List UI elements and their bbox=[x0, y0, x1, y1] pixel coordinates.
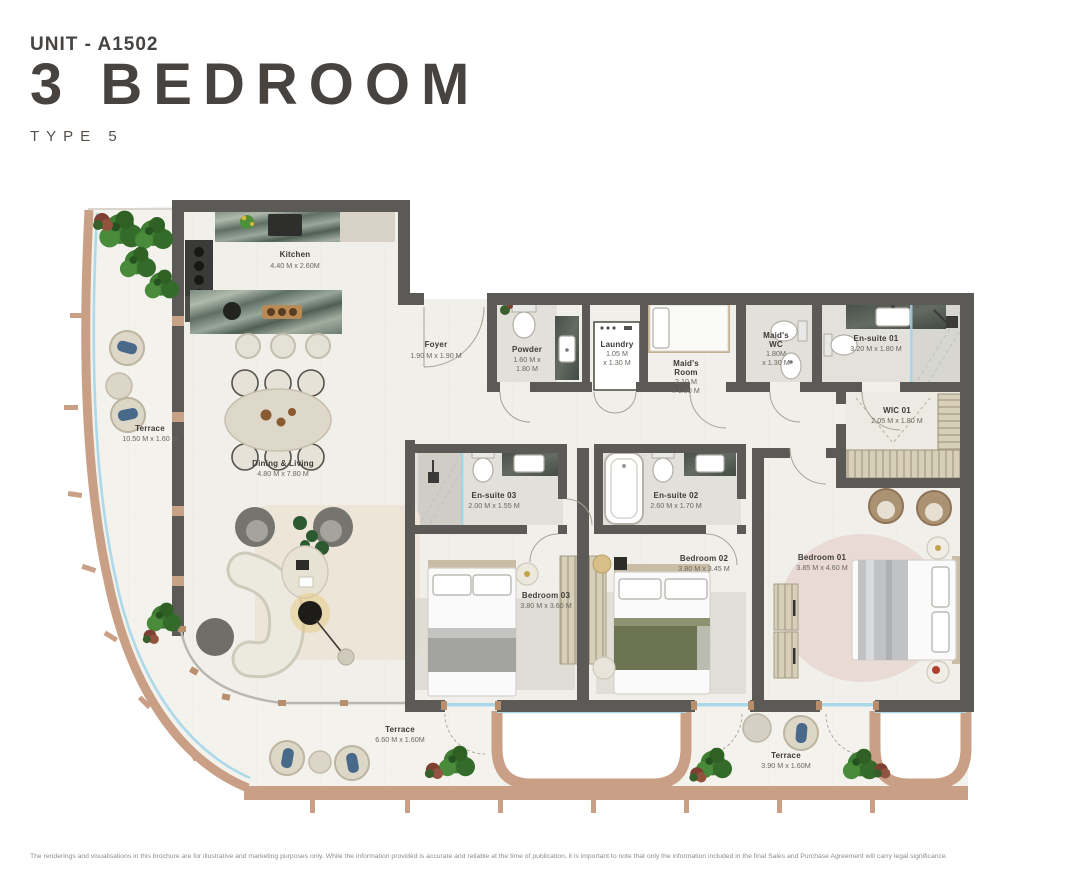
svg-text:2.60 M x 1.70 M: 2.60 M x 1.70 M bbox=[650, 501, 702, 510]
bedroom02-label: Bedroom 02 bbox=[680, 554, 729, 563]
wic01-label: WIC 01 bbox=[883, 406, 911, 415]
svg-text:3.90 M x 1.60M: 3.90 M x 1.60M bbox=[761, 761, 811, 770]
svg-text:2.05 M x 1.80 M: 2.05 M x 1.80 M bbox=[871, 416, 923, 425]
svg-text:1.80M: 1.80M bbox=[766, 349, 786, 358]
disclaimer-text: The renderings and visualisations in thi… bbox=[30, 853, 1080, 860]
svg-text:1.60 M x: 1.60 M x bbox=[513, 355, 541, 364]
dining-set bbox=[225, 370, 331, 470]
svg-text:10.50 M x 1.60 M: 10.50 M x 1.60 M bbox=[122, 434, 178, 443]
ensuite01-label: En-suite 01 bbox=[854, 334, 899, 343]
svg-text:6.60 M x 1.60M: 6.60 M x 1.60M bbox=[375, 735, 425, 744]
dining-living-label: Dining & Living bbox=[252, 459, 314, 468]
terrace-bottom-label: Terrace bbox=[385, 725, 415, 734]
svg-text:4.80 M x 7.80 M: 4.80 M x 7.80 M bbox=[257, 469, 309, 478]
foyer-dims: 1.90 M x 1.90 M bbox=[410, 351, 462, 360]
svg-text:2.00 M x 1.55 M: 2.00 M x 1.55 M bbox=[468, 501, 520, 510]
terrace-right-label: Terrace bbox=[771, 751, 801, 760]
terrace-left-label: Terrace bbox=[135, 424, 165, 433]
bar-stools bbox=[236, 334, 330, 358]
floor-plan: Kitchen 4.40 M x 2.60M Foyer 1.90 M x 1.… bbox=[0, 0, 1092, 891]
kitchen-label: Kitchen bbox=[280, 250, 311, 259]
svg-text:2.10 M: 2.10 M bbox=[675, 377, 697, 386]
svg-text:x 1.30 M: x 1.30 M bbox=[603, 358, 631, 367]
ensuite02-label: En-suite 02 bbox=[654, 491, 699, 500]
foyer-label: Foyer bbox=[425, 340, 448, 349]
maids-wc-label: Maid's bbox=[763, 331, 789, 340]
laundry-label: Laundry bbox=[601, 340, 634, 349]
svg-text:3.85 M x 4.60 M: 3.85 M x 4.60 M bbox=[796, 563, 848, 572]
svg-text:x 1.80 M: x 1.80 M bbox=[672, 386, 700, 395]
powder-label: Powder bbox=[512, 345, 542, 354]
maids-room-label: Maid's bbox=[673, 359, 699, 368]
svg-text:WC: WC bbox=[769, 340, 783, 349]
brochure-page: { "header": { "unit": "UNIT - A1502", "t… bbox=[0, 0, 1092, 891]
terrace-cutout-left bbox=[497, 710, 686, 784]
svg-text:x 1.30 M: x 1.30 M bbox=[762, 358, 790, 367]
svg-text:3.80 M x 3.45 M: 3.80 M x 3.45 M bbox=[678, 564, 730, 573]
bedroom03-label: Bedroom 03 bbox=[522, 591, 571, 600]
svg-text:3.80 M x 3.60 M: 3.80 M x 3.60 M bbox=[520, 601, 572, 610]
kitchen-dims: 4.40 M x 2.60M bbox=[270, 261, 320, 270]
svg-text:1.80 M: 1.80 M bbox=[516, 364, 538, 373]
maids-room-bed bbox=[648, 303, 730, 353]
ensuite03-label: En-suite 03 bbox=[472, 491, 517, 500]
svg-text:3.20 M x 1.80 M: 3.20 M x 1.80 M bbox=[850, 344, 902, 353]
bedroom01-label: Bedroom 01 bbox=[798, 553, 847, 562]
svg-text:1.05 M: 1.05 M bbox=[606, 349, 628, 358]
svg-text:Room: Room bbox=[674, 368, 697, 377]
